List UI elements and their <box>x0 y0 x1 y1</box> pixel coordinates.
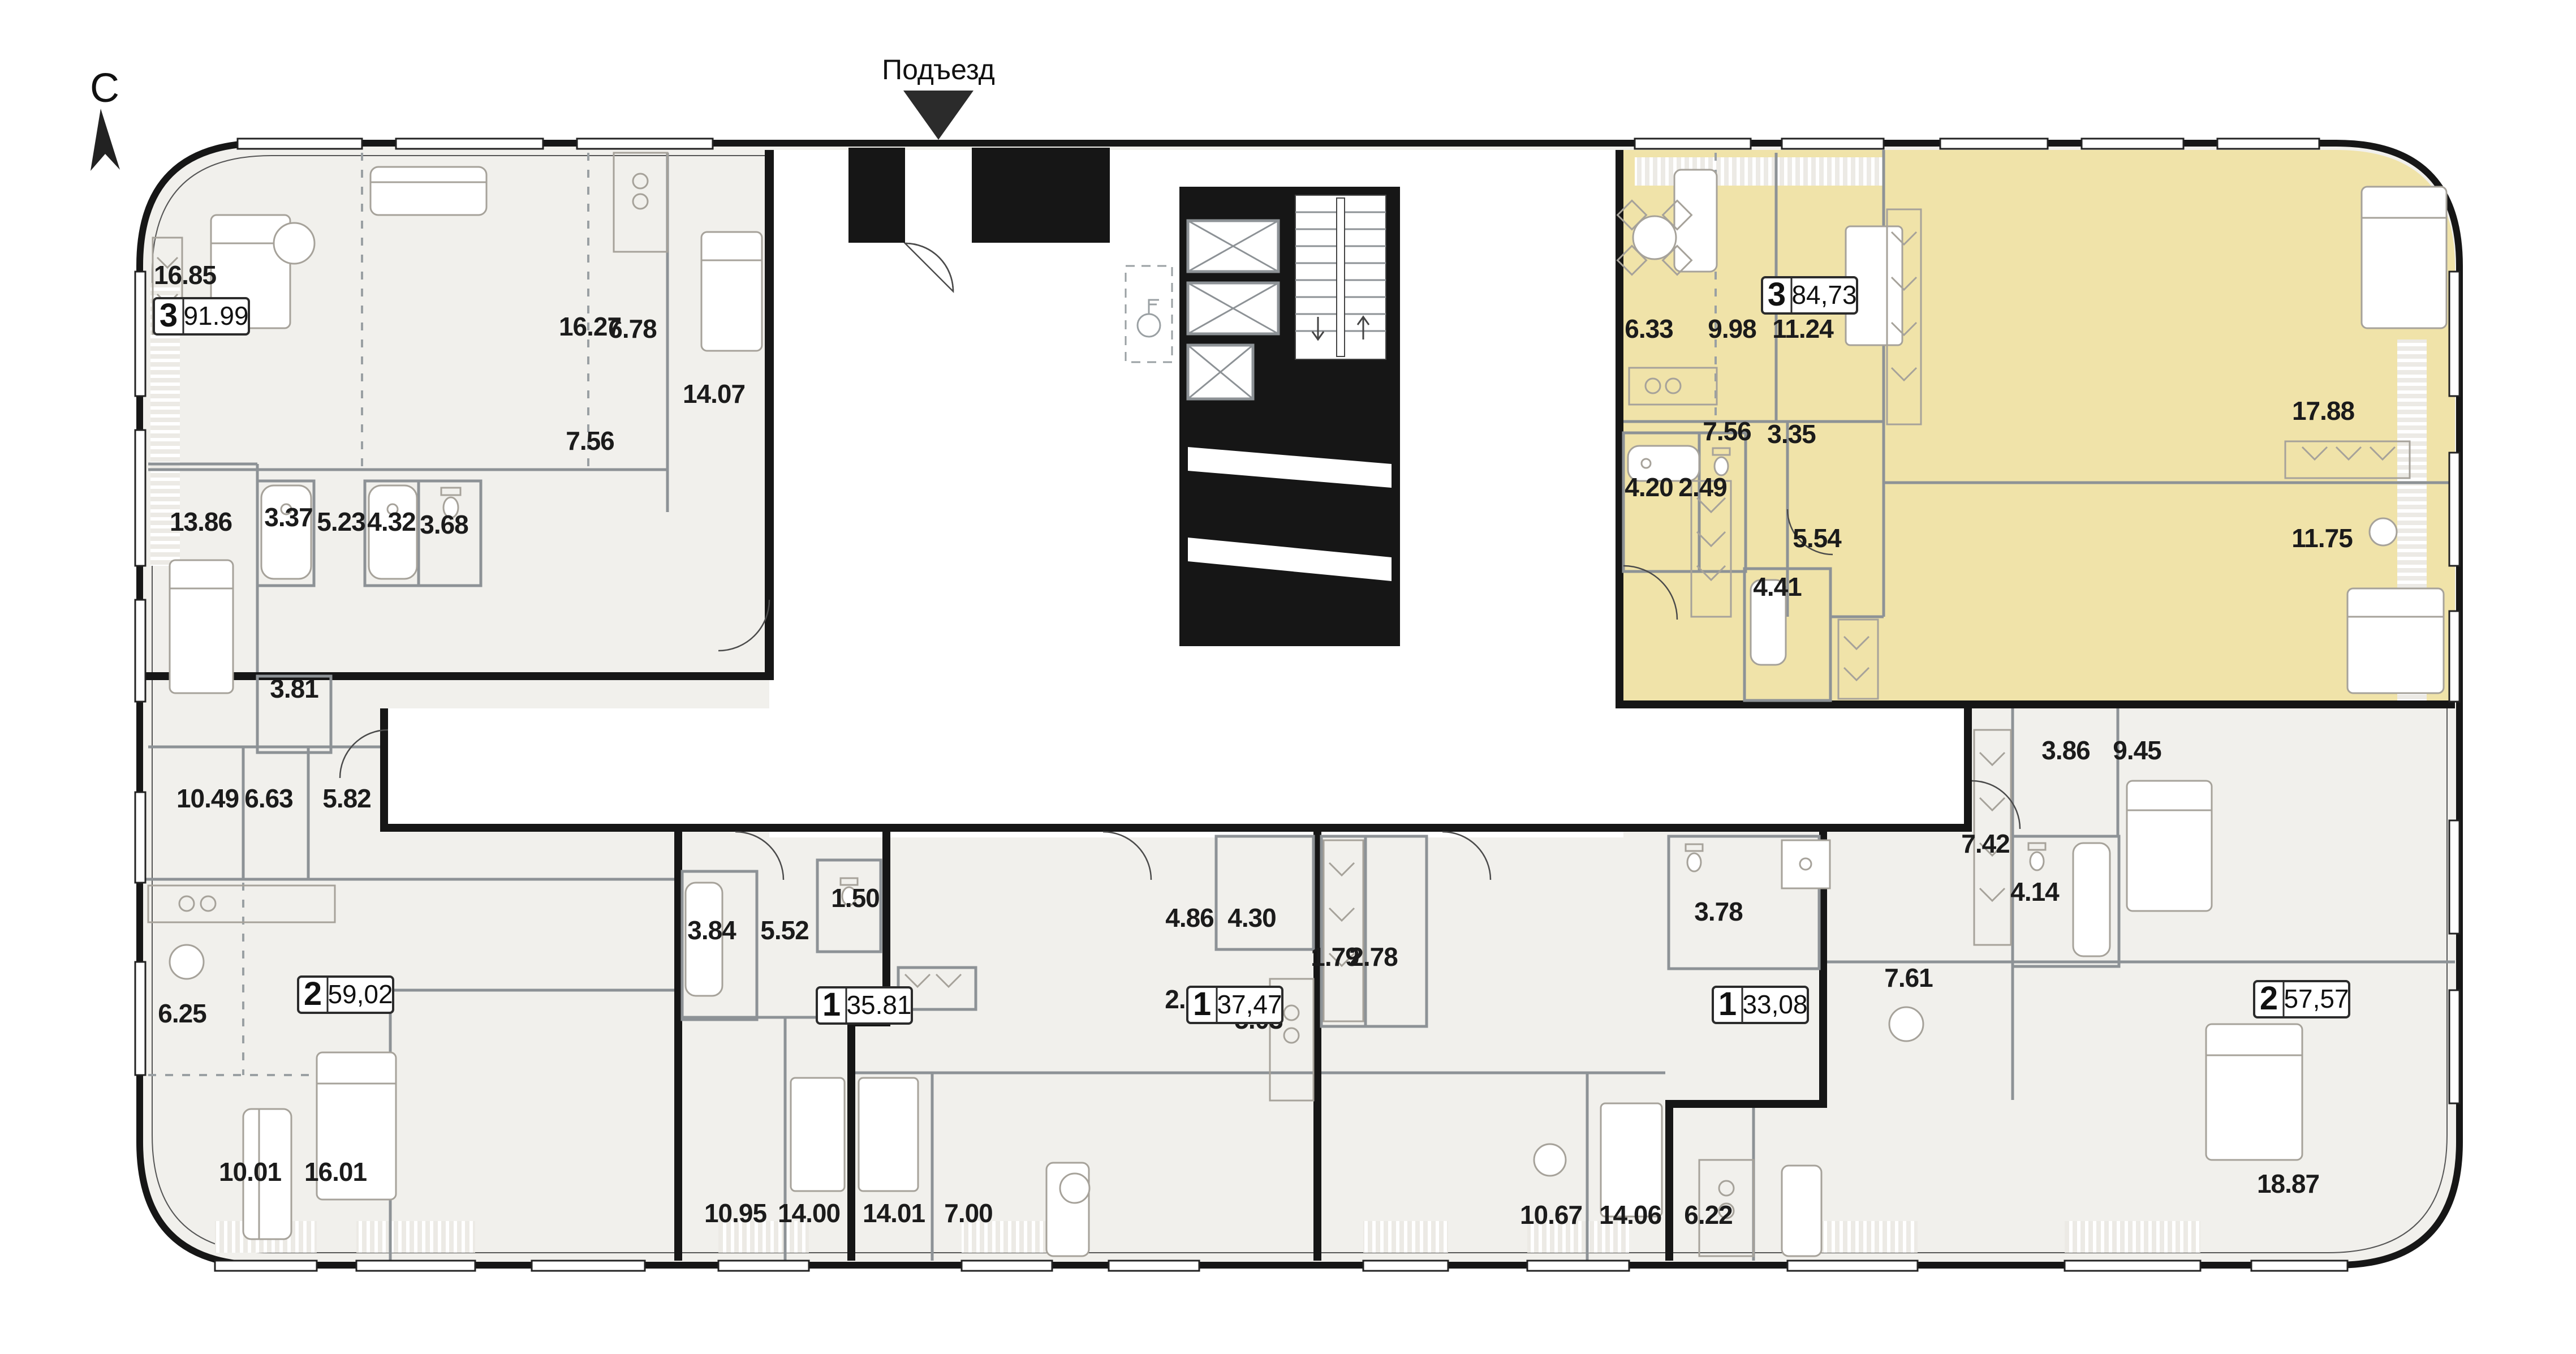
apartment-region-33-08[interactable] <box>1321 832 1819 1261</box>
entrance-marker: Подъезд <box>882 54 995 140</box>
north-marker: С <box>90 66 120 171</box>
floor-plan-page: С Подъезд 16.8516.276.7814.077.5613.863.… <box>0 0 2576 1354</box>
apartment-region-35-81[interactable] <box>682 832 847 1261</box>
entrance-label: Подъезд <box>882 54 995 85</box>
apartment-region-84-73[interactable] <box>1623 150 2455 707</box>
stairwell <box>1295 195 1386 359</box>
apartment-region-57-57[interactable] <box>1827 716 2455 1261</box>
apartment-region-37-47[interactable] <box>855 832 1313 1261</box>
entrance-arrow-icon <box>903 91 973 140</box>
apartment-region-59-02[interactable] <box>144 679 676 1261</box>
north-label: С <box>90 66 119 111</box>
north-arrow-icon <box>91 109 120 171</box>
apartment-region-91-99[interactable] <box>144 150 766 673</box>
floor-plan-svg: С Подъезд 16.8516.276.7814.077.5613.863.… <box>0 0 2576 1354</box>
